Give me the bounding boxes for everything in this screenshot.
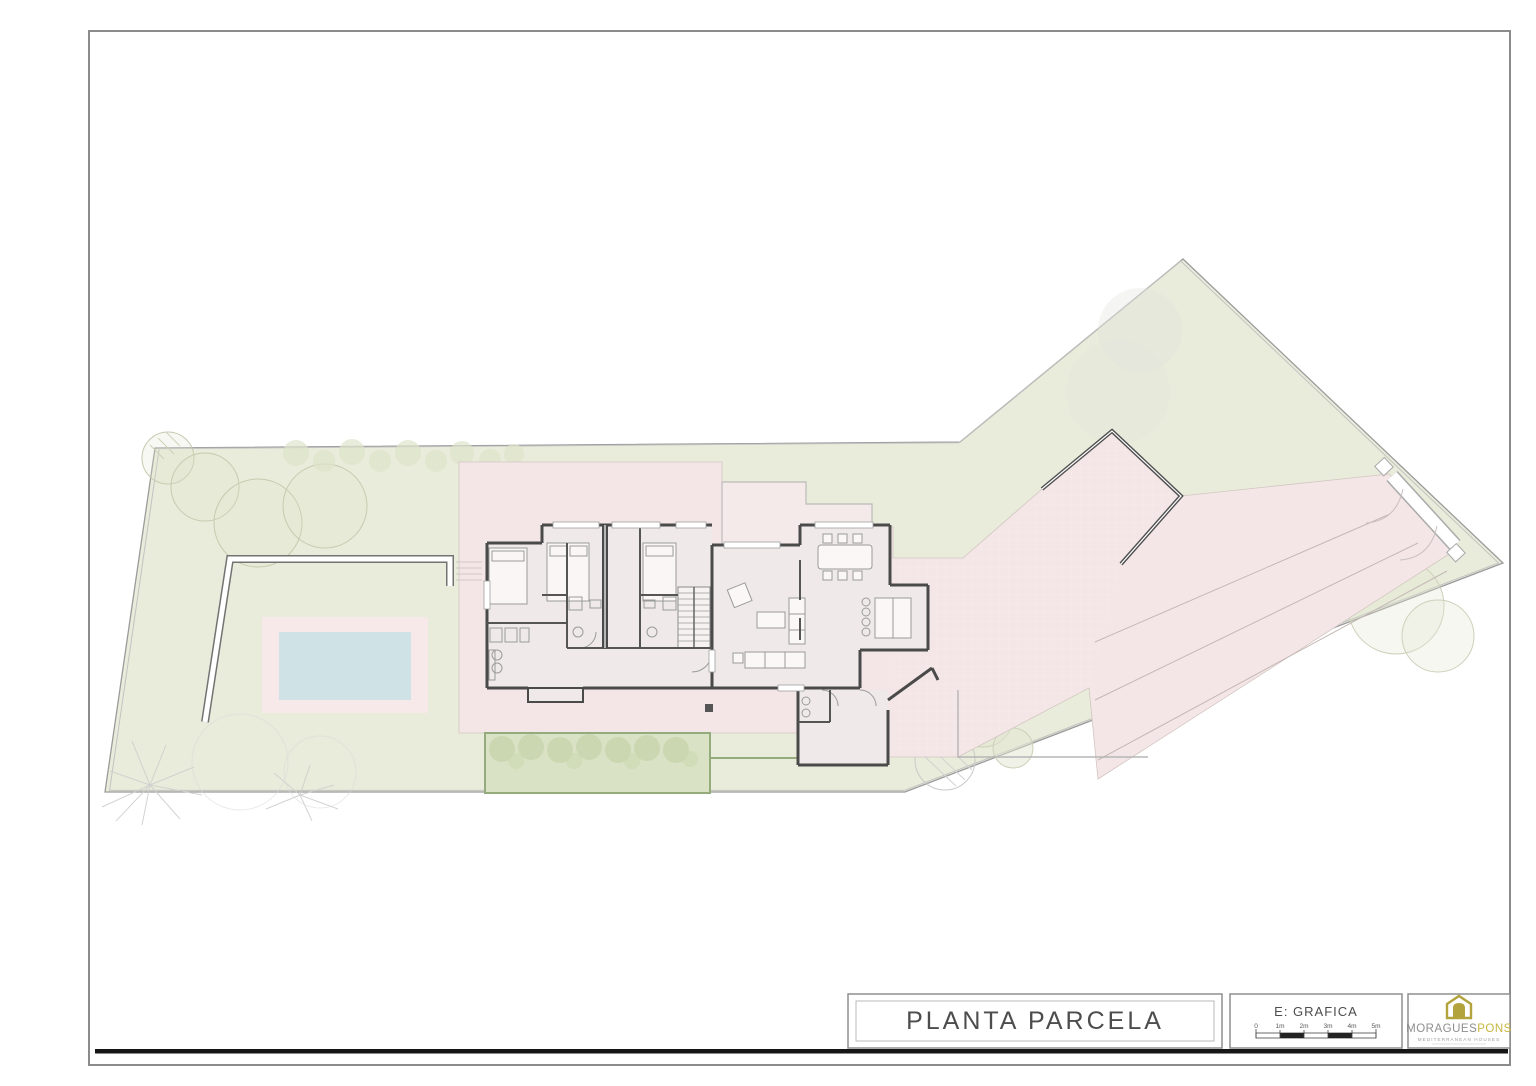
scale-tick-1: 1m	[1275, 1023, 1284, 1030]
brand-box: MORAGUESPONS MEDITERRANEAN HOUSES	[1406, 994, 1512, 1048]
brand-tagline: MEDITERRANEAN HOUSES	[1418, 1037, 1501, 1042]
heavy-rule	[95, 1049, 1508, 1054]
scale-box: E: GRAFICA 0 1m 2m 3m 4m 5m	[1230, 994, 1402, 1048]
scale-tick-0: 0	[1254, 1023, 1258, 1030]
site-plan-canvas: PLANTA PARCELA E: GRAFICA 0 1m 2m 3m 4m …	[0, 0, 1536, 1086]
scale-tick-4: 4m	[1347, 1023, 1356, 1030]
garage-wing-floor	[798, 690, 888, 765]
tree-shade	[1066, 340, 1170, 444]
scale-label: E: GRAFICA	[1274, 1004, 1358, 1019]
sheet-title: PLANTA PARCELA	[906, 1007, 1164, 1035]
scale-tick-3: 3m	[1323, 1023, 1332, 1030]
brand-name: MORAGUESPONS	[1406, 1023, 1512, 1035]
scale-tick-5: 5m	[1371, 1023, 1380, 1030]
title-box: PLANTA PARCELA	[848, 994, 1222, 1048]
pool-area	[262, 617, 428, 713]
drawing-sheet: PLANTA PARCELA E: GRAFICA 0 1m 2m 3m 4m …	[0, 0, 1536, 1086]
scale-tick-2: 2m	[1299, 1023, 1308, 1030]
pergola-post	[705, 704, 713, 712]
staircase	[678, 587, 710, 648]
swimming-pool	[279, 632, 411, 700]
